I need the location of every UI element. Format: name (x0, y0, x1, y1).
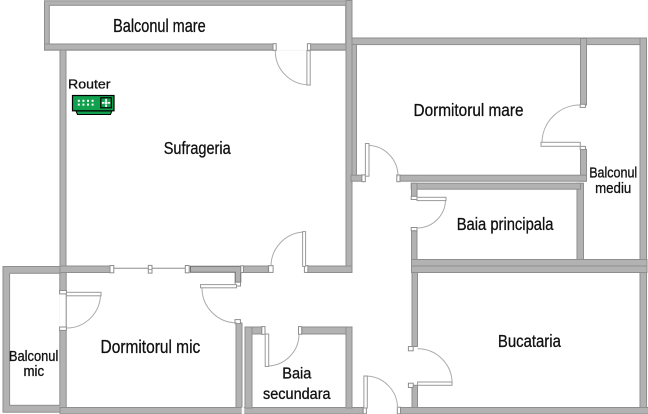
svg-text:Balconul: Balconul (9, 349, 59, 365)
svg-text:Baia principala: Baia principala (457, 214, 554, 234)
svg-text:Sufrageria: Sufrageria (164, 138, 231, 158)
svg-text:mic: mic (24, 364, 45, 380)
svg-text:secundara: secundara (263, 386, 331, 403)
svg-text:Router: Router (68, 77, 111, 92)
svg-text:Balconul mare: Balconul mare (113, 16, 206, 36)
svg-text:Balconul: Balconul (589, 166, 637, 182)
svg-text:Dormitorul mare: Dormitorul mare (414, 100, 524, 120)
svg-text:Dormitorul mic: Dormitorul mic (101, 337, 201, 357)
svg-text:Bucataria: Bucataria (498, 331, 561, 351)
svg-text:Baia: Baia (282, 365, 311, 382)
svg-text:mediu: mediu (595, 181, 631, 197)
